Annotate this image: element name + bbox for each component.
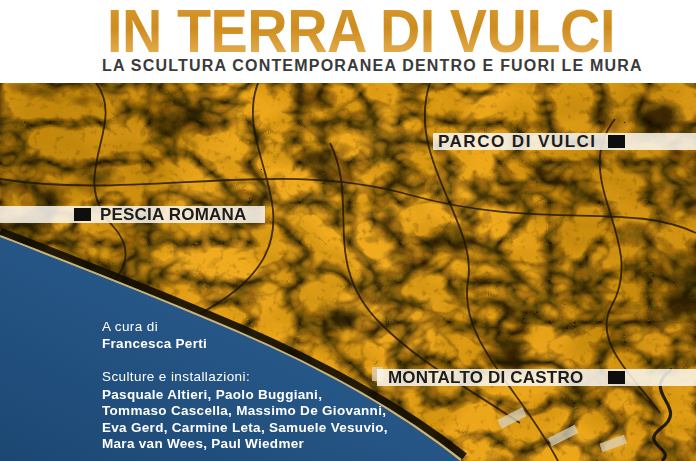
artists-line: Eva Gerd, Carmine Leta, Samuele Vesuvio,: [102, 420, 388, 437]
location-label-text: PESCIA ROMANA: [100, 206, 246, 223]
page-title: IN TERRA DI VULCI: [107, 0, 615, 62]
page-subtitle: LA SCULTURA CONTEMPORANEA DENTRO E FUORI…: [102, 58, 643, 74]
location-label-text: MONTALTO DI CASTRO: [388, 369, 583, 386]
credits-block: A cura di Francesca Perti Sculture e ins…: [102, 318, 388, 453]
section-label: Sculture e installazioni:: [102, 368, 388, 385]
location-marker-square-icon: [74, 208, 91, 221]
location-label-text: PARCO DI VULCI: [438, 133, 597, 150]
map-label-pescia-romana: PESCIA ROMANA: [0, 206, 265, 223]
poster: IN TERRA DI VULCI LA SCULTURA CONTEMPORA…: [0, 0, 696, 461]
artists-line: Tommaso Cascella, Massimo De Giovanni,: [102, 403, 388, 420]
location-marker-square-icon: [608, 135, 625, 148]
artists-line: Mara van Wees, Paul Wiedmer: [102, 436, 388, 453]
poster-header: IN TERRA DI VULCI LA SCULTURA CONTEMPORA…: [0, 0, 696, 83]
curator-name: Francesca Perti: [102, 336, 388, 353]
map-label-parco-di-vulci: PARCO DI VULCI: [433, 133, 696, 150]
curator-label: A cura di: [102, 318, 388, 335]
location-marker-square-icon: [608, 371, 625, 384]
map-label-montalto-di-castro: MONTALTO DI CASTRO: [377, 369, 696, 386]
artists-line: Pasquale Altieri, Paolo Buggiani,: [102, 387, 388, 404]
